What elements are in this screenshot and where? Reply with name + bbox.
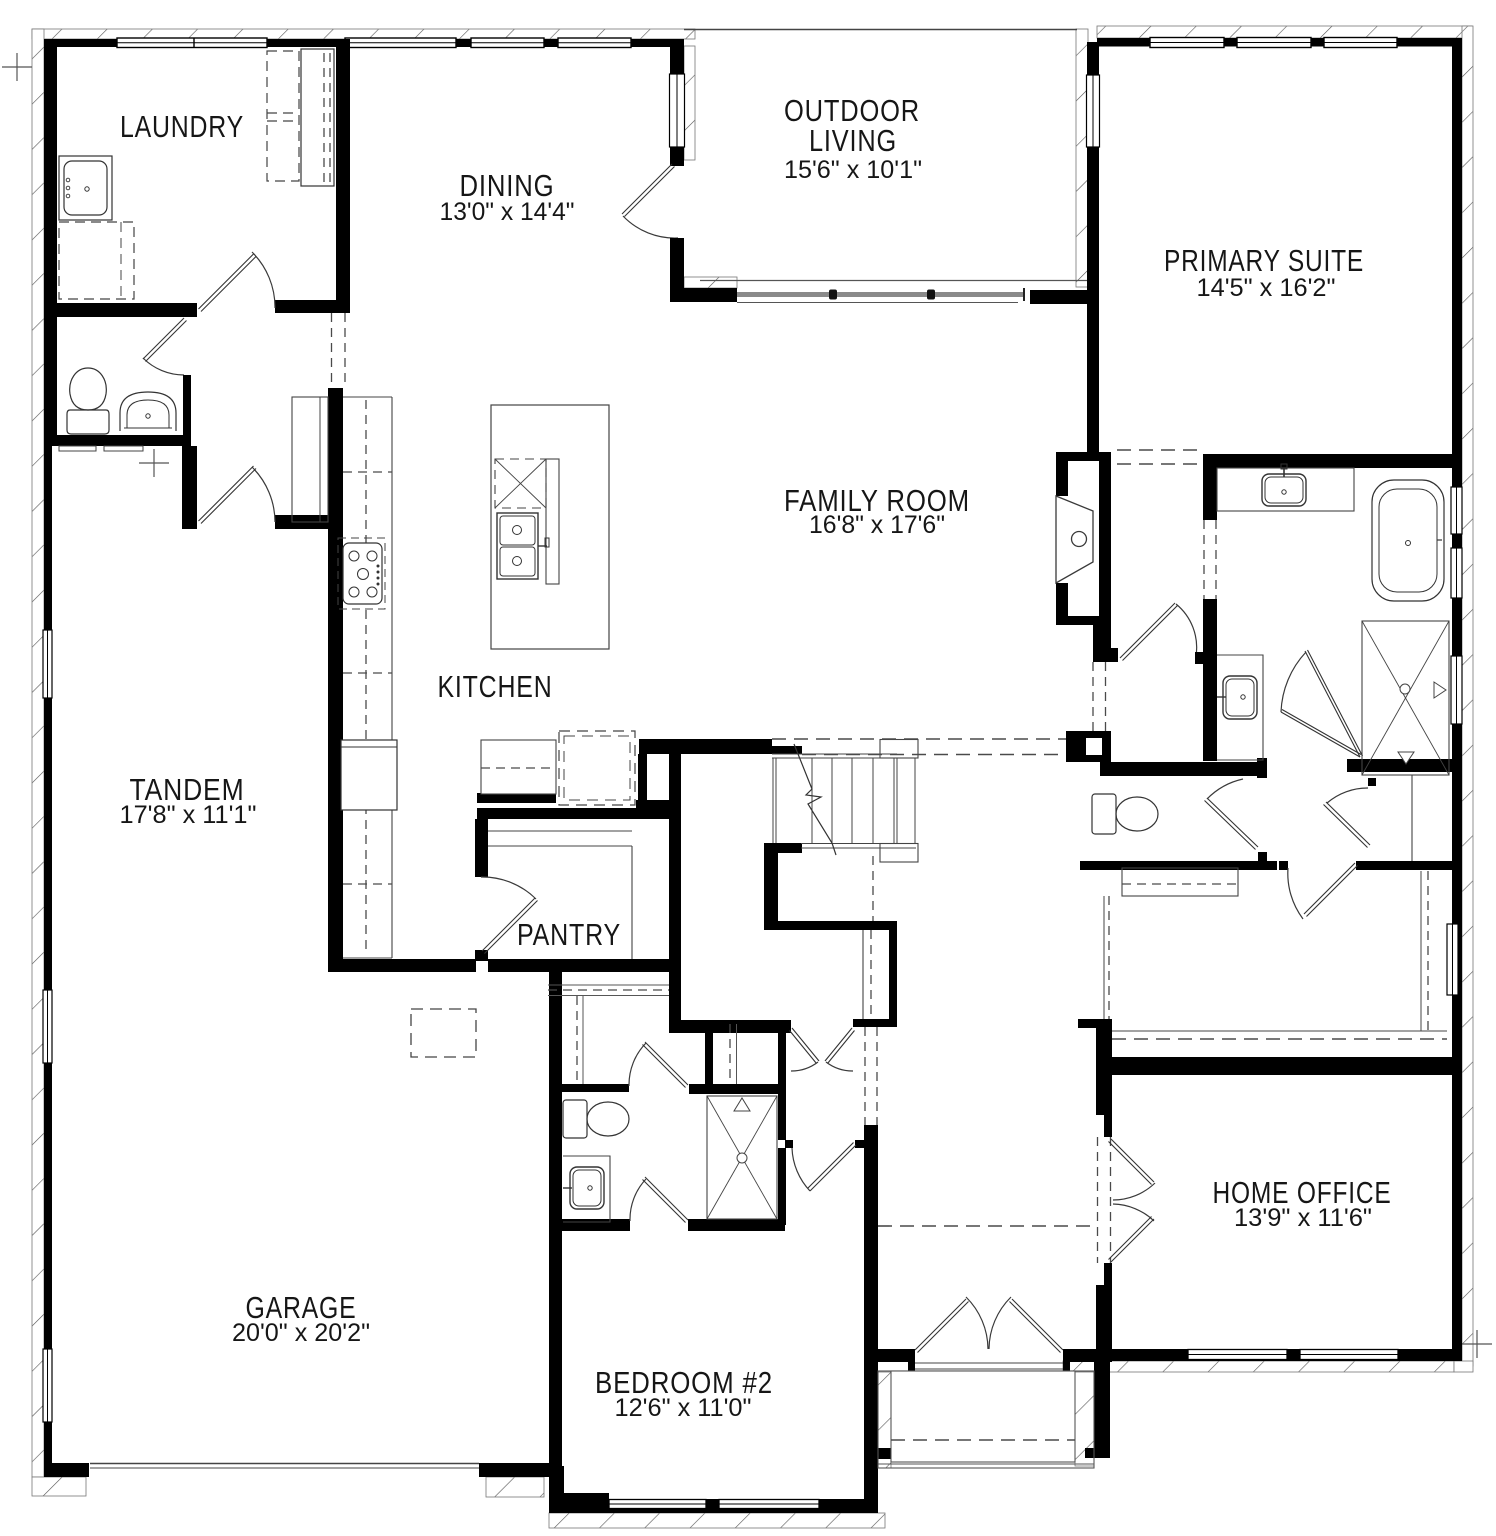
svg-text:PRIMARY SUITE: PRIMARY SUITE <box>1164 243 1364 278</box>
svg-text:LIVING: LIVING <box>809 123 897 158</box>
svg-text:13'0" x 14'4": 13'0" x 14'4" <box>440 198 575 226</box>
svg-text:20'0" x 20'2": 20'0" x 20'2" <box>232 1319 370 1347</box>
svg-text:15'6" x 10'1": 15'6" x 10'1" <box>784 156 922 184</box>
svg-text:KITCHEN: KITCHEN <box>438 669 553 704</box>
svg-text:13'9" x 11'6": 13'9" x 11'6" <box>1234 1204 1372 1232</box>
svg-text:17'8" x 11'1": 17'8" x 11'1" <box>120 801 257 829</box>
svg-text:12'6" x 11'0": 12'6" x 11'0" <box>615 1394 752 1422</box>
svg-text:LAUNDRY: LAUNDRY <box>120 109 244 144</box>
svg-text:14'5" x 16'2": 14'5" x 16'2" <box>1197 274 1336 302</box>
svg-text:16'8" x 17'6": 16'8" x 17'6" <box>809 511 945 539</box>
svg-text:PANTRY: PANTRY <box>517 917 621 952</box>
